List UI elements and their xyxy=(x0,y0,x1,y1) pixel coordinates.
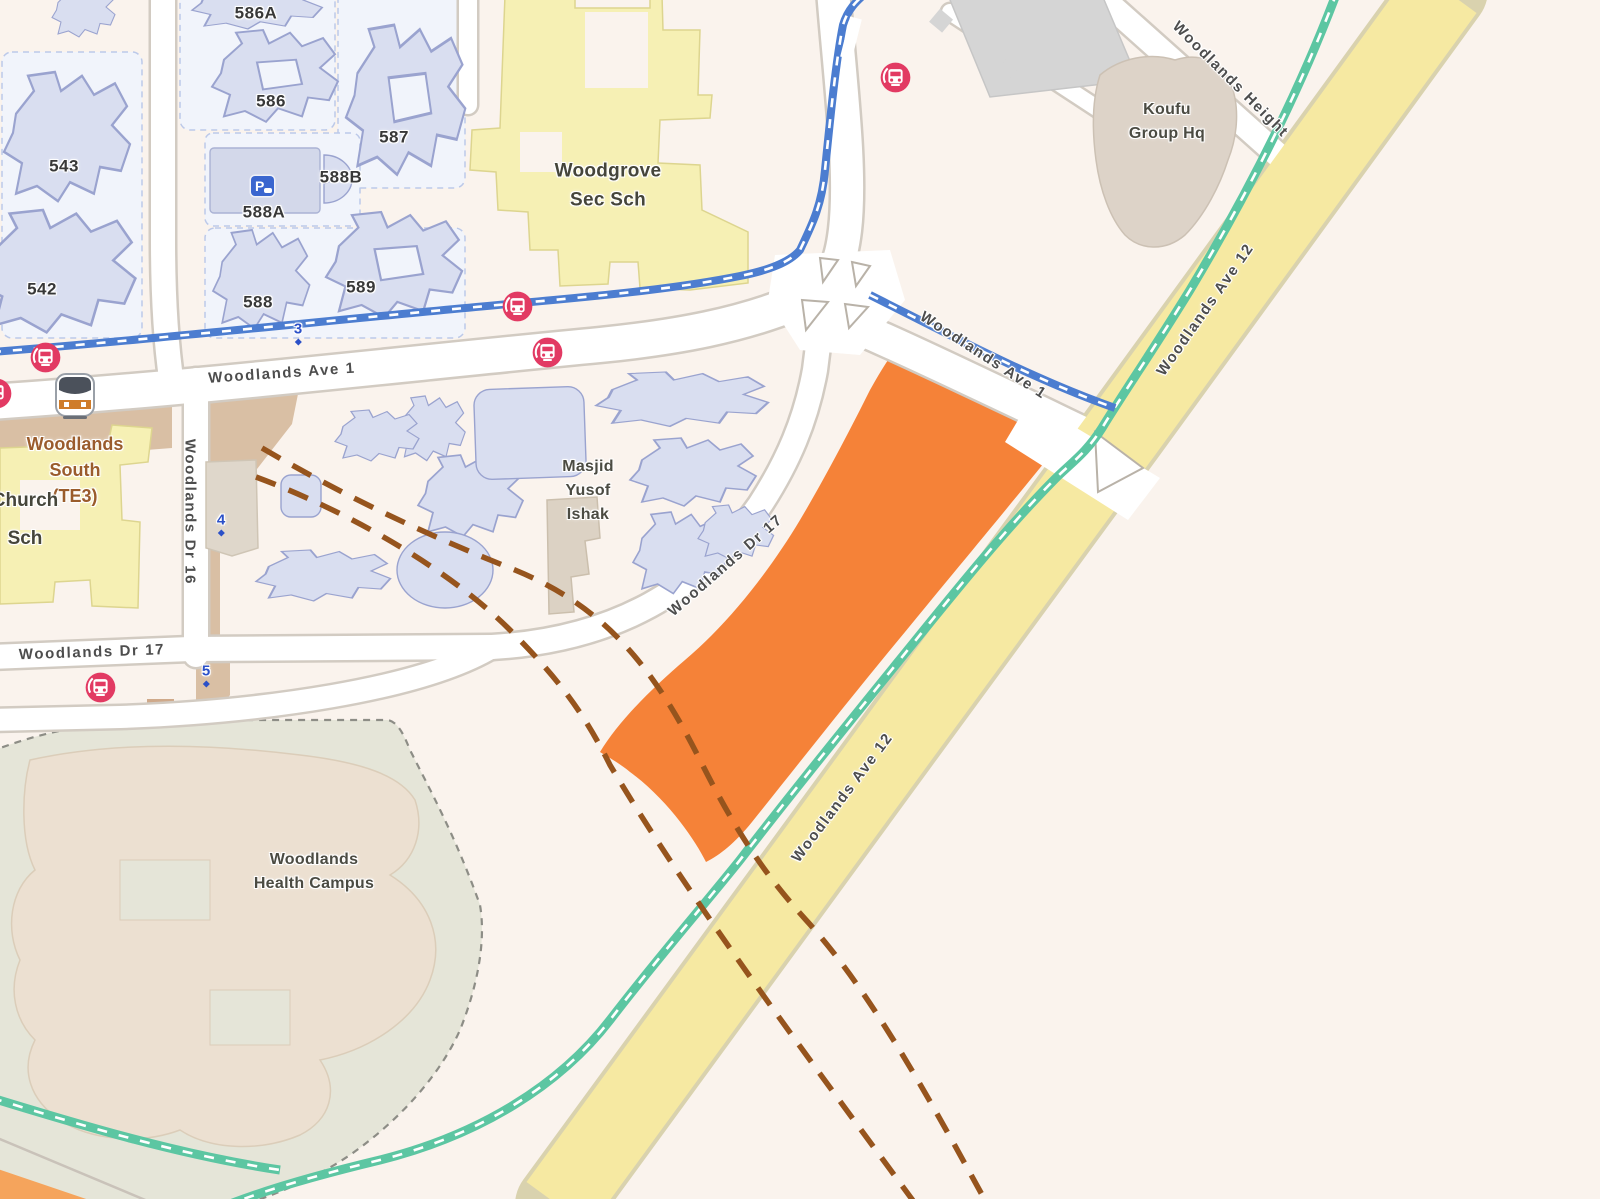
parking-icon[interactable]: P xyxy=(251,176,274,196)
car-icon xyxy=(264,188,272,193)
bus-stop-icon[interactable] xyxy=(502,291,533,327)
large-building xyxy=(473,386,586,480)
bus-stop-icon[interactable] xyxy=(532,337,563,373)
mrt-station-icon[interactable] xyxy=(53,372,97,420)
station-entrance-building xyxy=(206,460,258,556)
bus-stop-icon[interactable] xyxy=(0,378,12,414)
bus-stop-icon[interactable] xyxy=(30,342,61,378)
bus-stop-icon[interactable] xyxy=(880,62,911,98)
oval-building xyxy=(397,532,493,608)
map-base-layer xyxy=(0,0,1600,1199)
parking-label: P xyxy=(255,178,264,194)
map-canvas[interactable]: P Woodlands Ave 1 Woodlands Ave 1 Woodla… xyxy=(0,0,1600,1199)
bus-stop-icon[interactable] xyxy=(85,672,116,708)
